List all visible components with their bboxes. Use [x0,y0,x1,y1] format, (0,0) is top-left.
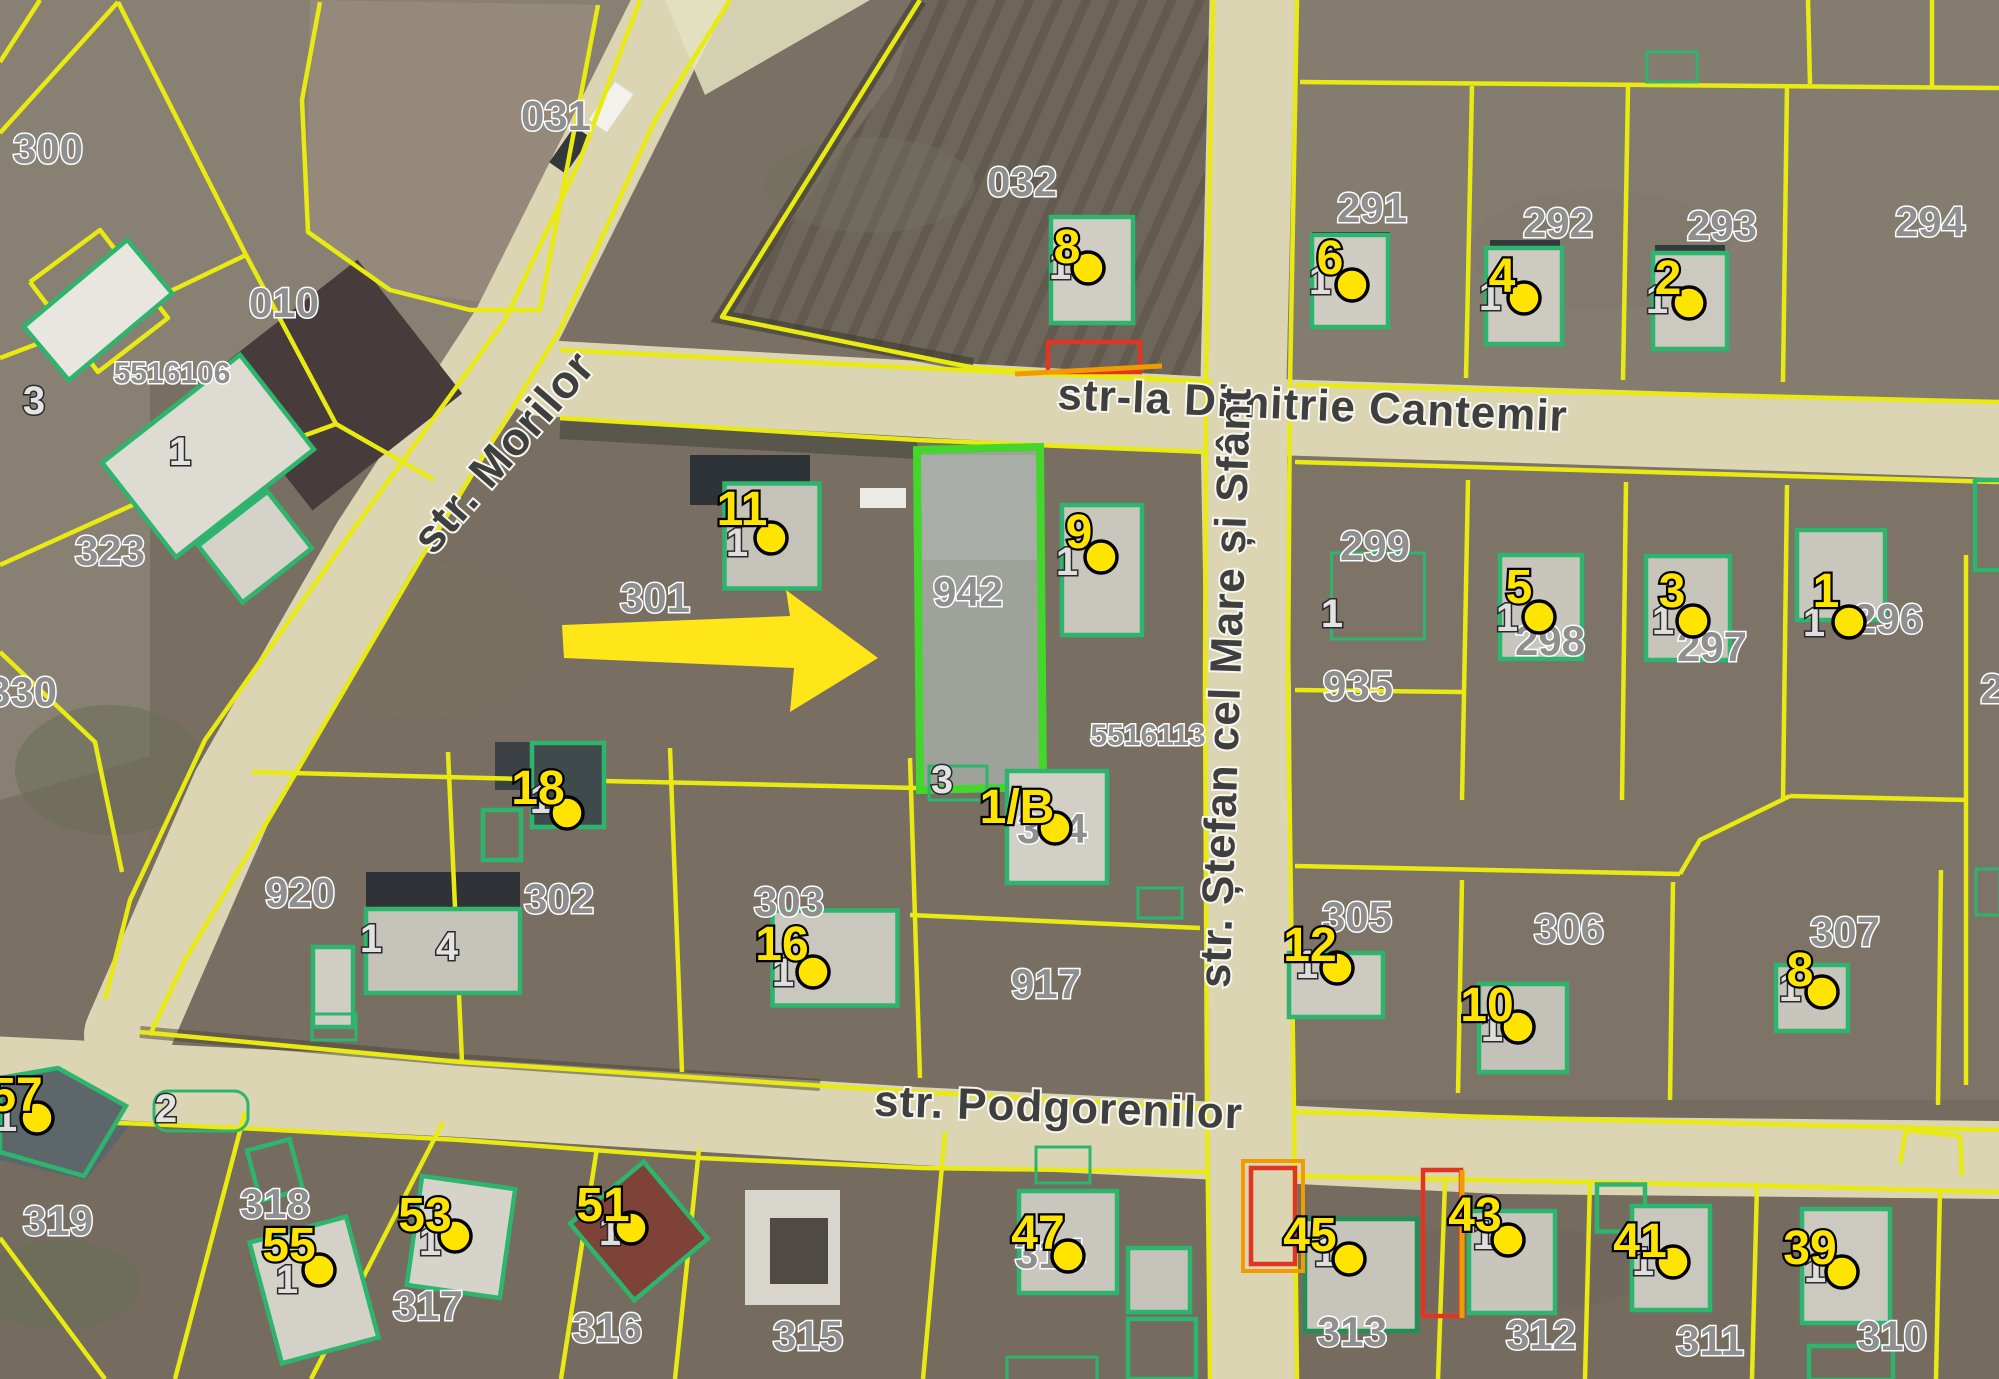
marker-number: 45 [1283,1209,1336,1262]
marker-number: 41 [1613,1215,1666,1268]
parcel-label-316: 316 [572,1304,642,1351]
marker-number: 4 [1489,250,1516,303]
parcel-boundary-line [1938,870,1941,1105]
marker-number: 55 [262,1219,315,1272]
building-outline [1128,1248,1190,1312]
aerial-structure [860,488,906,508]
building-number: 3 [931,758,953,802]
parcel-label-031: 031 [521,92,591,139]
marker-number: 53 [398,1189,451,1242]
marker-dot[interactable] [1333,1243,1365,1275]
building-number: 4 [436,925,459,969]
parcel-label-301: 301 [620,574,690,621]
parcel-label-312: 312 [1506,1311,1576,1358]
parcel-label-010: 010 [249,279,319,326]
parcel-label-917: 917 [1011,960,1081,1007]
parcel-label-299: 299 [1340,522,1410,569]
parcel-label-5516113: 5516113 [1090,719,1205,752]
marker-number: 39 [1783,1222,1836,1275]
parcel-label-294: 294 [1895,198,1966,245]
parcel-label-032: 032 [987,158,1057,205]
marker-number: 5 [1506,561,1533,614]
marker-number: 3 [1659,565,1686,618]
map-canvas[interactable]: 3000310322912922932940105516106323330301… [0,0,1999,1379]
marker-number: 47 [1011,1207,1064,1260]
parcel-942-outline [917,447,1043,790]
parcel-label-300: 300 [13,125,83,172]
parcel-label-307: 307 [1810,908,1880,955]
marker-number: 18 [511,762,564,815]
marker-number: 2 [1655,252,1682,305]
parcel-label-317: 317 [393,1282,463,1329]
parcel-boundary-line [1670,882,1673,1100]
parcel-label-311: 311 [1676,1317,1744,1364]
parcel-label-323: 323 [75,527,145,574]
marker-number: 6 [1317,232,1344,285]
aerial-structure [366,872,520,912]
building-number: 1 [1321,592,1343,636]
parcel-label-2: 2 [1980,665,1999,712]
parcel-label-291: 291 [1337,184,1407,231]
parcel-boundary-line [1808,0,1810,84]
parcel-label-935: 935 [1323,662,1393,709]
parcel-label-920: 920 [265,869,335,916]
parcel-label-302: 302 [524,875,594,922]
marker-number: 51 [576,1179,629,1232]
marker-number: 43 [1448,1189,1501,1242]
marker-number: 1 [1813,565,1840,618]
parcel-label-315: 315 [773,1312,843,1359]
marker-number: 16 [755,918,808,971]
marker-number: 9 [1066,506,1093,559]
marker-number: 1/B [980,781,1055,834]
parcel-label-306: 306 [1534,905,1604,952]
parcel-label-5516106: 5516106 [114,357,231,390]
building-number: 3 [23,379,45,423]
parcel-label-313: 313 [1317,1308,1387,1355]
map-canvas-svg[interactable]: 3000310322912922932940105516106323330301… [0,0,1999,1379]
parcel-label-292: 292 [1523,199,1593,246]
marker-number: 8 [1054,221,1081,274]
marker-number: 8 [1787,944,1814,997]
parcel-label-293: 293 [1687,202,1757,249]
building-number: 2 [155,1087,177,1131]
parcel-label-310: 310 [1857,1312,1927,1359]
parcel-label-330: 330 [0,668,57,715]
map-viewport: 3000310322912922932940105516106323330301… [0,0,1999,1379]
marker-number: 12 [1283,919,1336,972]
marker-number: 11 [717,483,768,536]
aerial-structure [770,1218,828,1284]
parcel-label-319: 319 [23,1197,93,1244]
building-number: 1 [360,917,382,961]
marker-number: 10 [1460,979,1513,1032]
parcel-label-942: 942 [933,568,1003,615]
building-number: 1 [169,430,191,474]
marker-number: 57 [0,1069,43,1122]
